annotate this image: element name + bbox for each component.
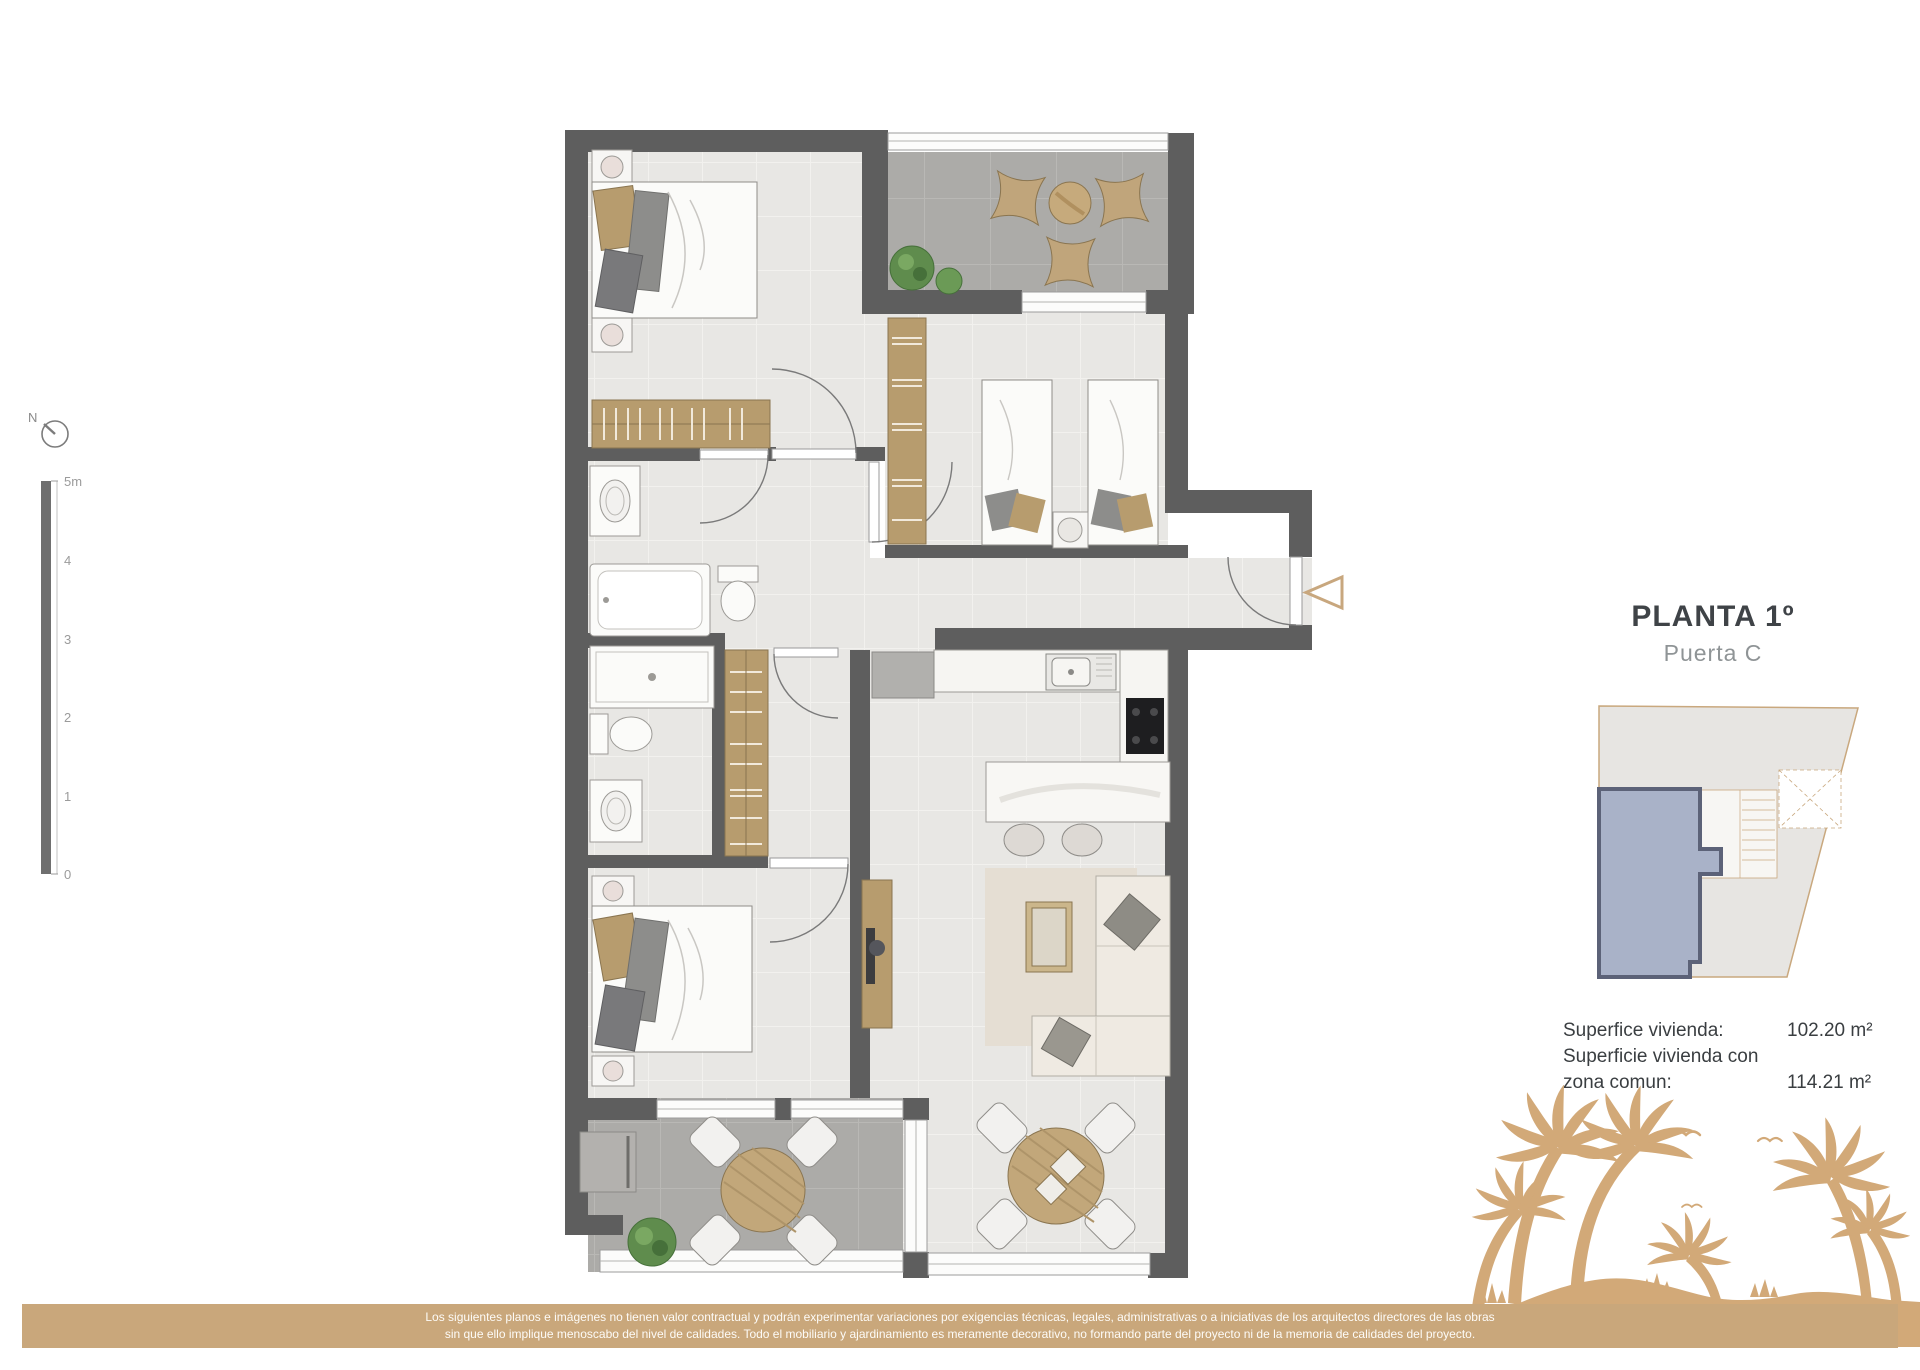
disclaimer-line-2: sin que ello implique menoscabo del nive… xyxy=(22,1326,1898,1343)
sink xyxy=(601,791,631,831)
lightwell xyxy=(1779,770,1841,828)
tv xyxy=(866,928,875,984)
compass-label: N xyxy=(28,410,37,425)
entry-floor xyxy=(862,558,1312,628)
site-plan xyxy=(1585,695,1895,990)
terrace-chair xyxy=(1045,237,1095,287)
sink xyxy=(600,480,630,522)
scale-label-5m: 5m xyxy=(64,474,82,489)
corridor-wardrobe xyxy=(725,650,768,856)
area-row: Superfice vivienda: 102.20 m² xyxy=(1563,1018,1903,1044)
terrace-chair xyxy=(1096,174,1149,227)
compass-needle-icon xyxy=(44,424,55,434)
scale-label-1: 1 xyxy=(64,789,71,804)
toilet-tank xyxy=(718,566,758,582)
bird-icon xyxy=(1758,1138,1782,1141)
cooktop xyxy=(1126,698,1164,754)
lamp xyxy=(601,156,623,178)
area-label: Superficie vivienda con xyxy=(1563,1044,1787,1070)
lamp xyxy=(601,324,623,346)
plant xyxy=(628,1218,676,1266)
toilet-tank xyxy=(590,714,608,754)
disclaimer-line-1: Los siguientes planos e imágenes no tien… xyxy=(22,1309,1898,1326)
toilet xyxy=(610,717,652,751)
lamp xyxy=(603,881,623,901)
scale-label-3: 3 xyxy=(64,632,71,647)
scale-label-0: 0 xyxy=(64,867,71,882)
lamp xyxy=(1058,518,1082,542)
north-compass: N xyxy=(20,402,86,468)
stool xyxy=(1062,824,1102,856)
area-row: Superficie vivienda con xyxy=(1563,1044,1903,1070)
disclaimer-bar: Los siguientes planos e imágenes no tien… xyxy=(22,1304,1898,1348)
scale-bar: 5m 4 3 2 1 0 xyxy=(30,470,100,890)
area-value: 102.20 m² xyxy=(1787,1018,1873,1044)
fridge xyxy=(872,652,934,698)
grass-tuft xyxy=(1642,1273,1671,1293)
grass-tuft xyxy=(1750,1279,1778,1297)
scale-label-2: 2 xyxy=(64,710,71,725)
stool xyxy=(1004,824,1044,856)
terrace-1-floor xyxy=(888,152,1168,305)
floor-plan xyxy=(560,110,1360,1300)
toilet xyxy=(721,581,755,621)
bird-icon xyxy=(1682,1205,1702,1207)
area-label: Superfice vivienda: xyxy=(1563,1018,1787,1044)
plant xyxy=(890,246,934,290)
plant xyxy=(936,268,962,294)
title-block: PLANTA 1º Puerta C xyxy=(1563,600,1863,667)
bedroom-1 xyxy=(592,150,770,448)
scale-bar-rect xyxy=(41,481,51,874)
page-title: PLANTA 1º xyxy=(1563,600,1863,634)
lamp xyxy=(603,1061,623,1081)
page-subtitle: Puerta C xyxy=(1563,640,1863,667)
scale-label-4: 4 xyxy=(64,553,71,568)
